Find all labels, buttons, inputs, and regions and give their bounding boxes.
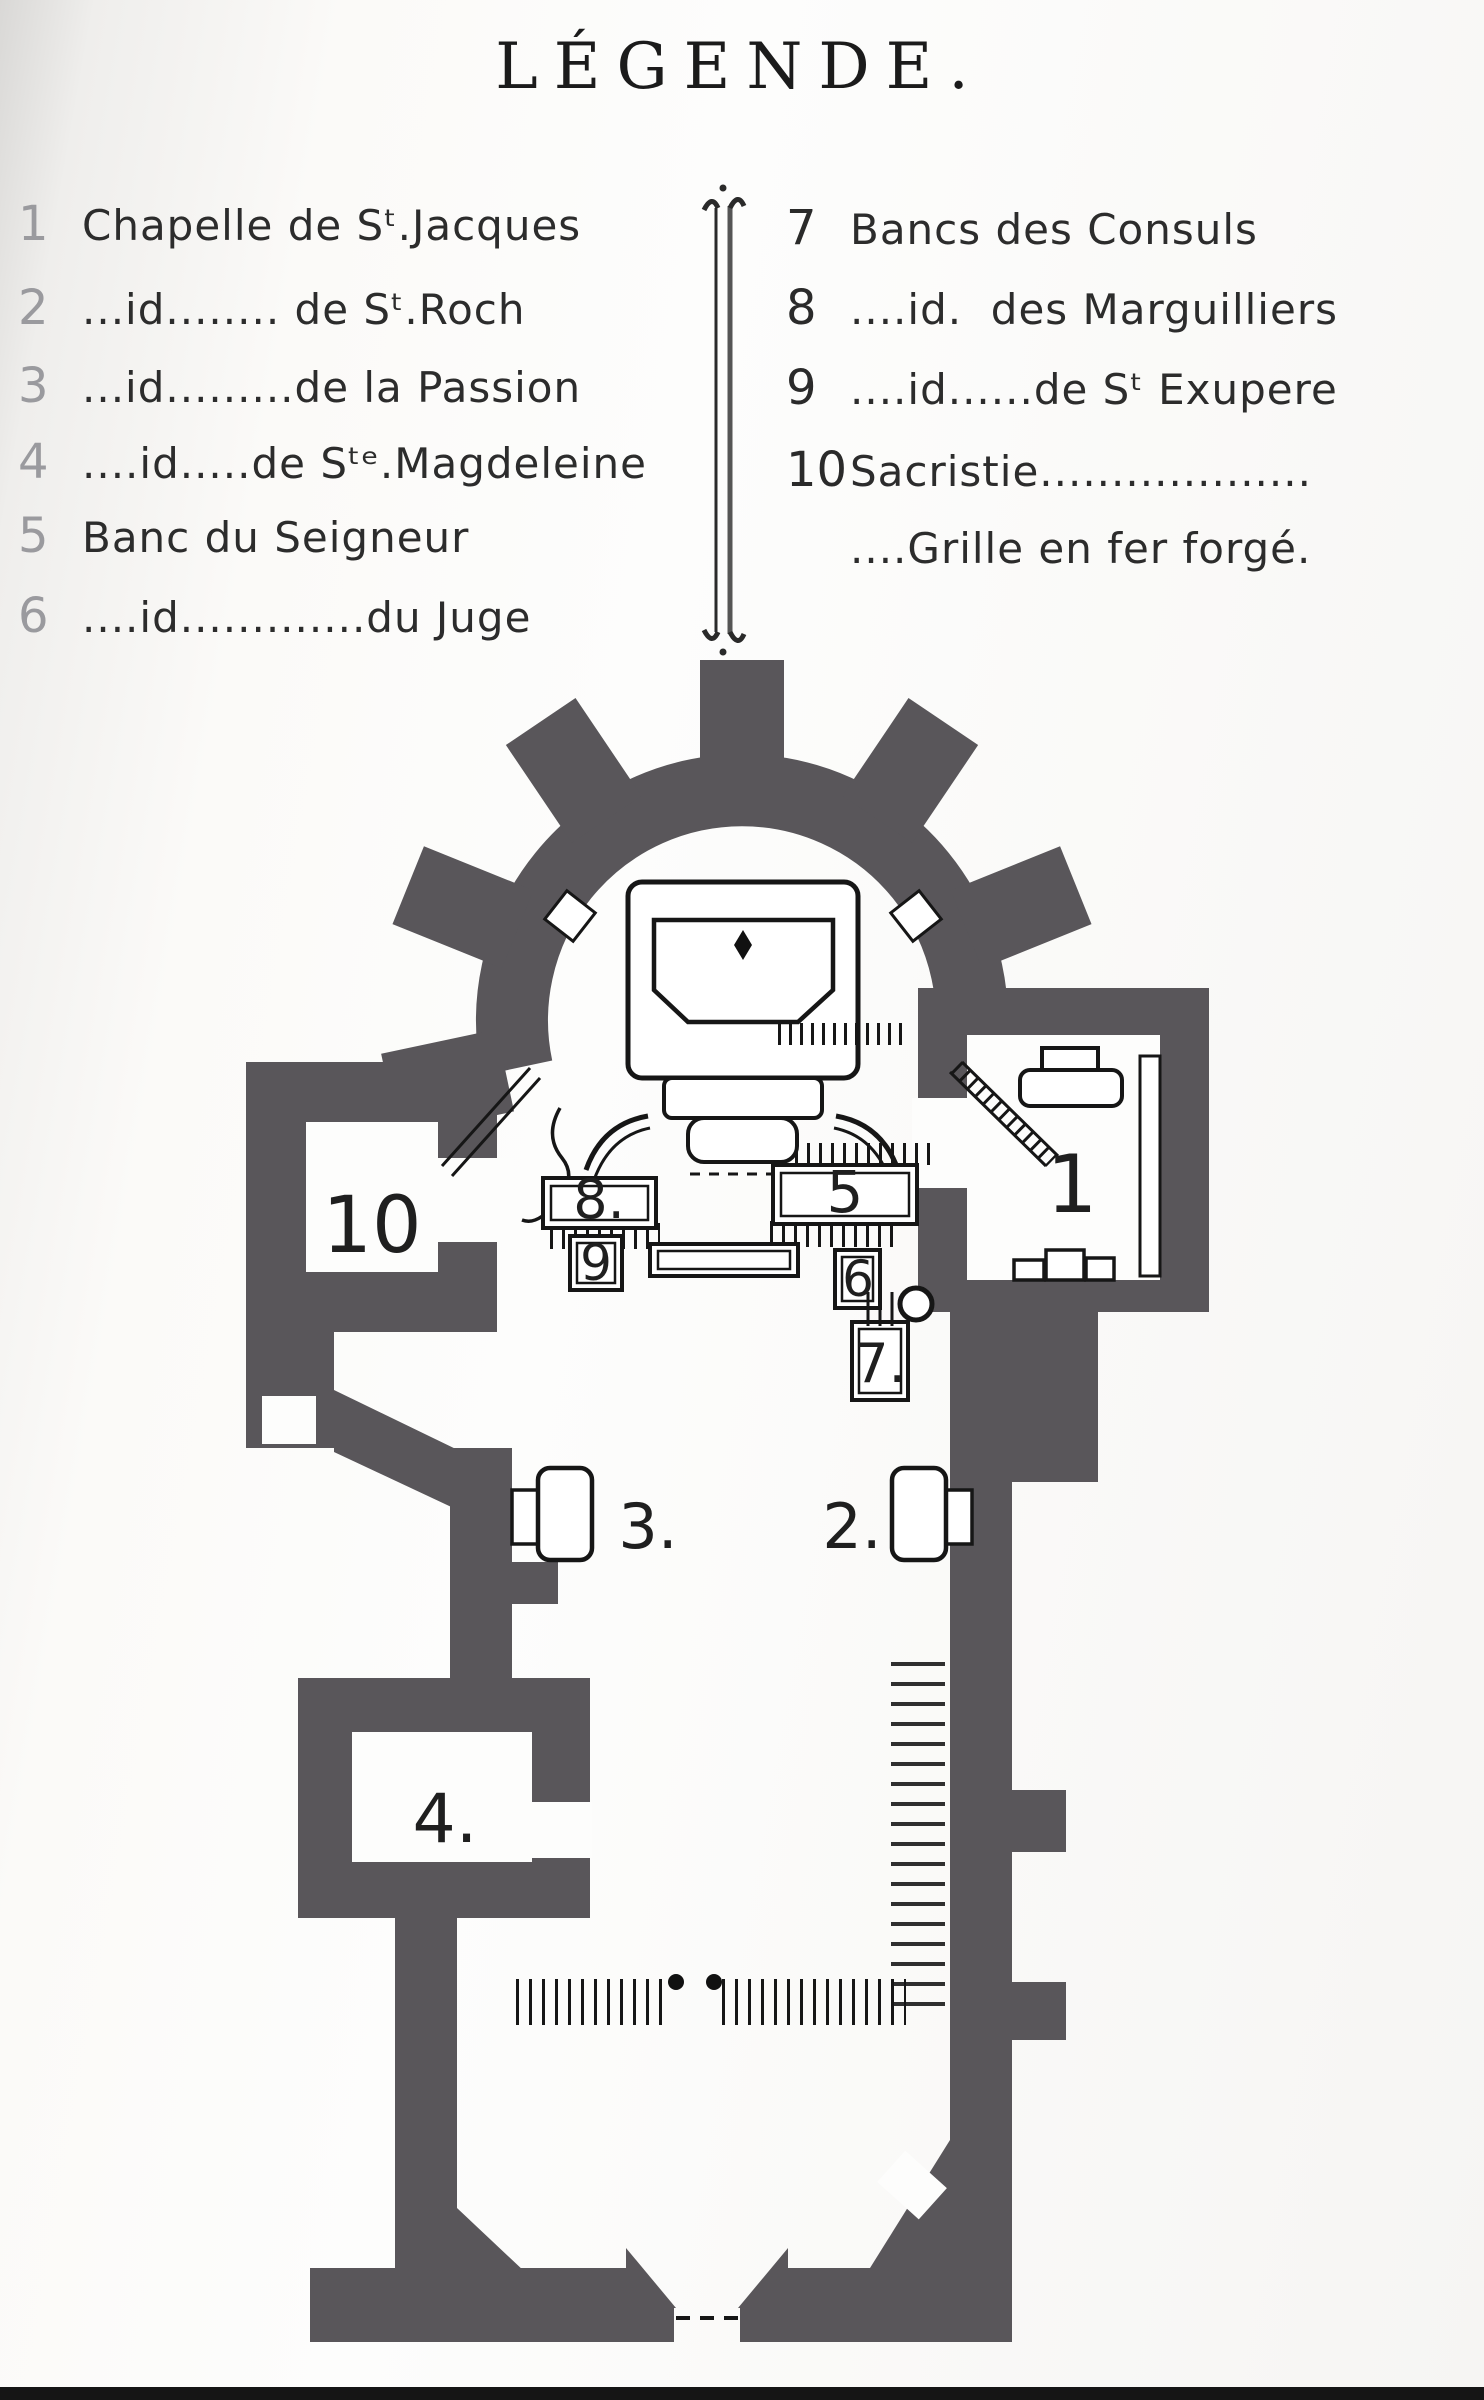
left-nave-wall-upper [450,1448,512,1680]
room-1-doorway [912,1098,969,1188]
funnel-right [738,2248,788,2308]
left-nave-wall-lower [395,1916,457,2272]
side-altar-3 [512,1468,592,1560]
funnel-left [626,2248,676,2308]
label-chapel-4: 4. [413,1780,478,1859]
label-chapel-1: 1 [1047,1138,1098,1231]
grille-post-right [706,1974,722,1990]
room-10-doorway [436,1158,514,1242]
label-altar-3: 3. [618,1490,677,1563]
bottom-wall-left [310,2268,626,2342]
chancel-gate-step [650,1244,798,1276]
portal-jamb-right [740,2308,788,2342]
label-bench-7: 7. [854,1332,906,1395]
right-wall-wide [950,1312,1098,1482]
west-side-door [262,1396,316,1444]
left-diagonal-wall [334,1390,462,1512]
label-bench-5: 5 [827,1158,864,1226]
label-altar-2: 2. [822,1490,881,1563]
floor-plan: 10 1 8. 5 9 6 7. 3. 2. 4. [0,0,1484,2400]
right-buttress-1 [1012,1790,1066,1852]
grille-post-left [668,1974,684,1990]
label-bench-6: 6 [842,1250,874,1308]
right-diagonal-block [870,2140,1012,2268]
room-4-doorway [530,1802,592,1858]
label-bench-9: 9 [580,1234,612,1292]
left-corner-chamfer [457,2208,525,2272]
baptismal-font [900,1288,932,1320]
label-room-10: 10 [322,1181,421,1271]
label-bench-8: 8. [573,1168,625,1231]
left-pilaster [512,1562,558,1604]
portal-jamb-left [626,2308,674,2342]
buttress [700,660,784,778]
bottom-wall-right [788,2268,1012,2342]
right-buttress-2 [1012,1982,1066,2040]
page-bottom-edge [0,2387,1484,2400]
